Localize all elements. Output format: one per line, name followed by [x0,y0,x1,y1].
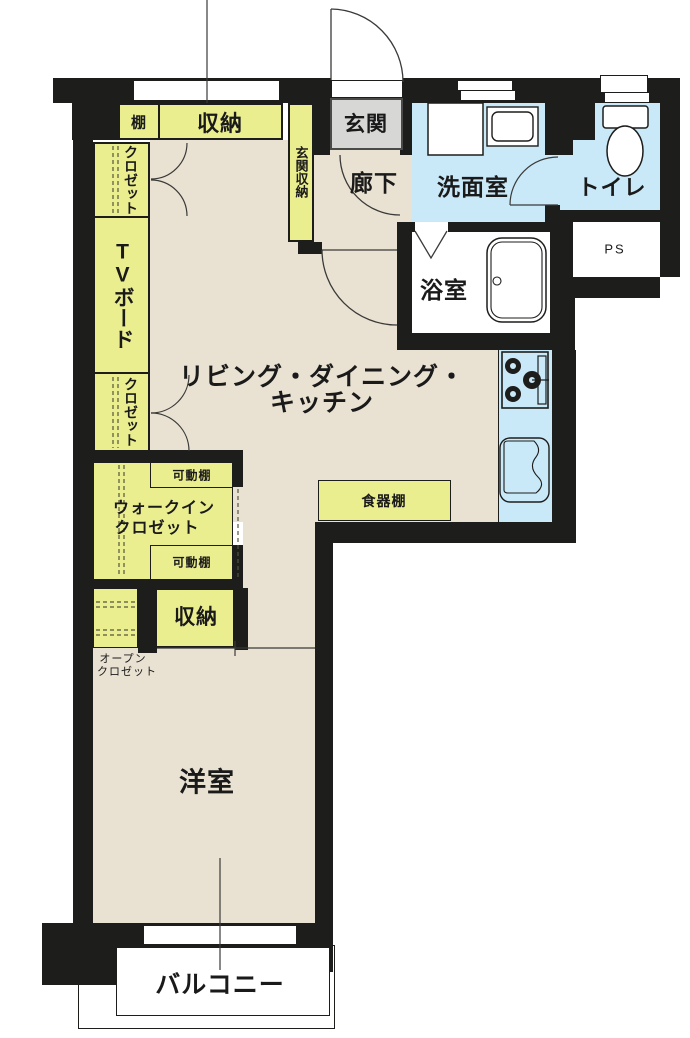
window [460,90,516,101]
entrance-door-leaf [331,80,403,98]
floor-plan: 棚 収納 クロゼット TVボード クロゼット 玄関収納 玄関 廊下 洗面室 トイ… [0,0,690,1038]
window [133,80,280,101]
wall-segment [235,588,248,650]
storage-lower-label: 収納 [174,601,218,631]
tv-board-label: TVボード [107,241,137,350]
bathroom-door-gap [415,222,448,233]
open-closet-box [93,588,138,648]
wall-segment [397,333,552,350]
window [143,925,297,945]
wall-segment [73,140,93,923]
washroom-doorway-floor [397,155,412,222]
wall-segment [298,242,322,254]
wall-segment [72,78,118,140]
wall-segment [75,580,243,588]
closet-upper-label: クロゼット [121,145,141,215]
wall-segment [573,277,660,298]
western-room-label: 洋室 [179,761,235,800]
wall-segment [233,462,243,487]
bathroom-label: 浴室 [420,271,468,305]
toilet-label: トイレ [577,170,646,202]
shelf-label: 棚 [131,112,147,133]
washroom-label: 洗面室 [437,168,509,202]
kitchen-counter [498,350,552,522]
wall-segment [550,210,575,350]
wall-segment [233,545,243,580]
entrance-storage-label: 玄関収納 [292,146,311,198]
walk-in-closet-label-line2: クロゼット [114,514,199,538]
door-swing-icon [331,9,403,82]
wall-segment [397,222,412,350]
window [604,92,650,103]
open-closet-label-line2: クロゼット [97,663,157,679]
ldk-label-line2: キッチン [270,383,374,419]
movable-shelf-top-label: 可動棚 [172,467,211,484]
wall-segment [545,140,573,155]
washroom-floor [412,103,545,222]
hallway-label: 廊下 [350,164,398,198]
wall-segment [552,350,576,522]
wall-segment [660,78,680,277]
entrance-label: 玄関 [344,108,388,138]
balcony-label: バルコニー [155,965,285,1001]
closet-strip-divider [93,216,150,218]
wall-segment [315,522,576,543]
storage-top-label: 収納 [197,106,243,138]
window [600,75,648,93]
wall-segment [315,543,333,923]
corridor-floor [243,522,315,648]
movable-shelf-bottom-label: 可動棚 [172,554,211,571]
cupboard-label: 食器棚 [362,491,407,511]
pipe-space-label: PS [604,242,625,257]
wall-segment [545,103,595,140]
closet-lower-label: クロゼット [121,377,141,447]
closet-strip-divider [93,372,150,374]
wall-segment [312,78,330,155]
wall-segment [545,205,560,222]
